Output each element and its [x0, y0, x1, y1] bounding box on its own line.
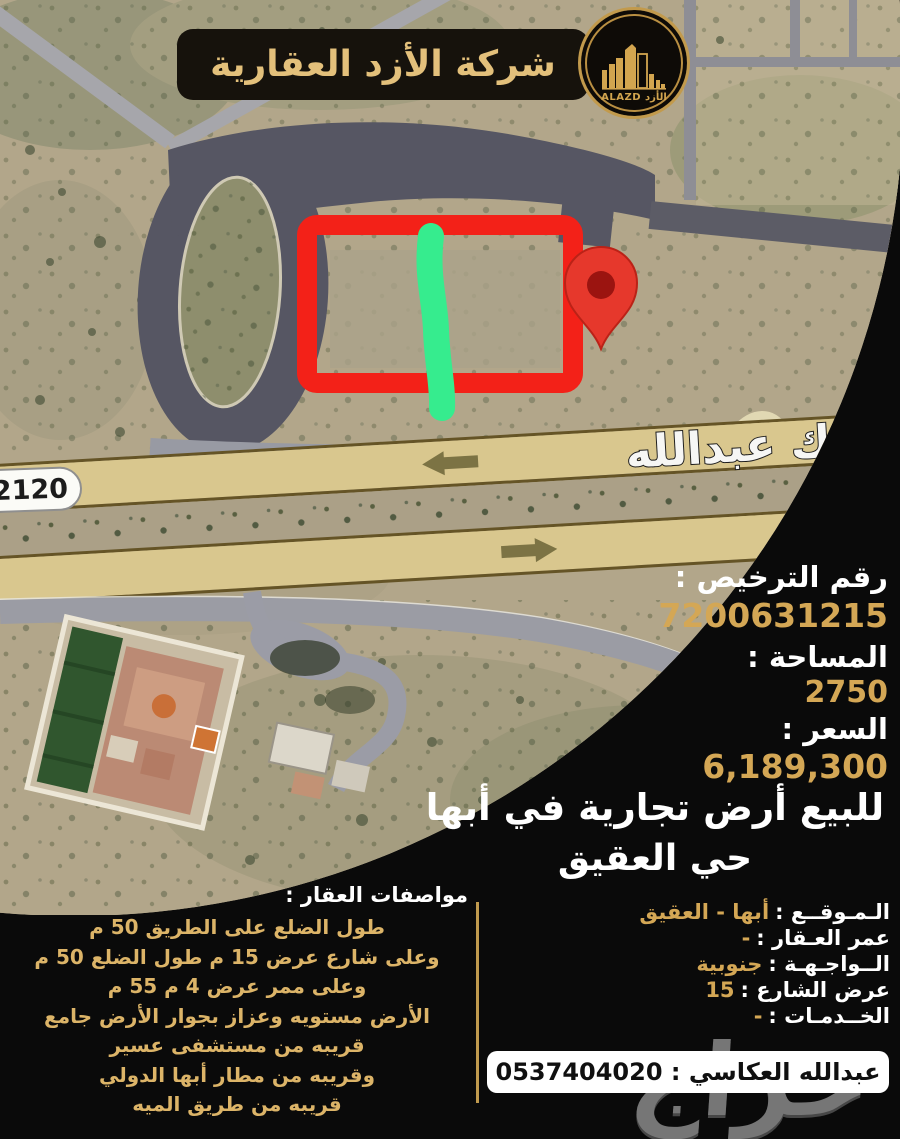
spec-line: قريبه من مستشفى عسير [6, 1031, 468, 1061]
price-value: 6,189,300 [702, 747, 888, 786]
detail-label: عمر العـقار : [756, 926, 890, 950]
detail-row: الــواجـهـة :جنوبية [475, 951, 890, 977]
detail-row: الـمـوقــع :أبها - العقيق [475, 899, 890, 925]
walled-compound [27, 617, 242, 828]
license-label: رقم الترخيص : [675, 560, 888, 594]
area-value: 2750 [805, 675, 889, 710]
spec-line: وعلى شارع عرض 15 م طول الضلع 50 م [6, 943, 468, 973]
headline-line1: للبيع أرض تجارية في أبها [415, 786, 895, 829]
headline-line2: حي العقيق [415, 838, 895, 879]
spec-line: قريبه من طريق الميه [6, 1090, 468, 1120]
detail-value: 15 [705, 978, 734, 1002]
spec-line: وعلى ممر عرض 4 م 55 م [6, 972, 468, 1002]
spec-line: وقريبه من مطار أبها الدولي [6, 1061, 468, 1091]
detail-row: الخــدمـات :- [475, 1003, 890, 1029]
detail-label: الــواجـهـة : [768, 952, 890, 976]
specs-list: طول الضلع على الطريق 50 م وعلى شارع عرض … [6, 913, 468, 1120]
route-number-badge: 2120 [0, 466, 83, 514]
company-logo: ALAZD الأزد [578, 7, 690, 119]
column-divider [476, 902, 479, 1103]
company-header: شركة الأزد العقارية [177, 29, 589, 100]
detail-value: - [742, 926, 751, 950]
specs-title: مواصفات العقار : [6, 883, 468, 907]
detail-label: الخــدمـات : [768, 1004, 890, 1028]
detail-label: عرض الشارع : [741, 978, 890, 1002]
contact-button[interactable]: عبدالله العكاسي : 0537404020 [487, 1051, 889, 1093]
detail-value: - [754, 1004, 763, 1028]
spec-line: الأرض مستويه وعزاز بجوار الأرض جامع [6, 1002, 468, 1032]
detail-row: عمر العـقار :- [475, 925, 890, 951]
area-label: المساحة : [747, 640, 888, 674]
plot-frontage-line [429, 236, 442, 408]
price-label: السعر : [782, 712, 888, 746]
buildings-icon [602, 40, 666, 90]
detail-label: الـمـوقــع : [775, 900, 890, 924]
real-estate-flyer: { "brand": { "title": "شركة الأزد العقار… [0, 0, 900, 1125]
spec-line: طول الضلع على الطريق 50 م [6, 913, 468, 943]
logo-wordmark: ALAZD الأزد [601, 92, 667, 103]
property-specs: مواصفات العقار : طول الضلع على الطريق 50… [6, 883, 468, 1120]
detail-value: جنوبية [696, 952, 762, 976]
detail-row: عرض الشارع :15 [475, 977, 890, 1003]
detail-value: أبها - العقيق [639, 900, 769, 924]
license-value: 7200631215 [658, 596, 888, 635]
company-title: شركة الأزد العقارية [210, 44, 556, 85]
property-details: الـمـوقــع :أبها - العقيق عمر العـقار :-… [475, 899, 890, 1029]
